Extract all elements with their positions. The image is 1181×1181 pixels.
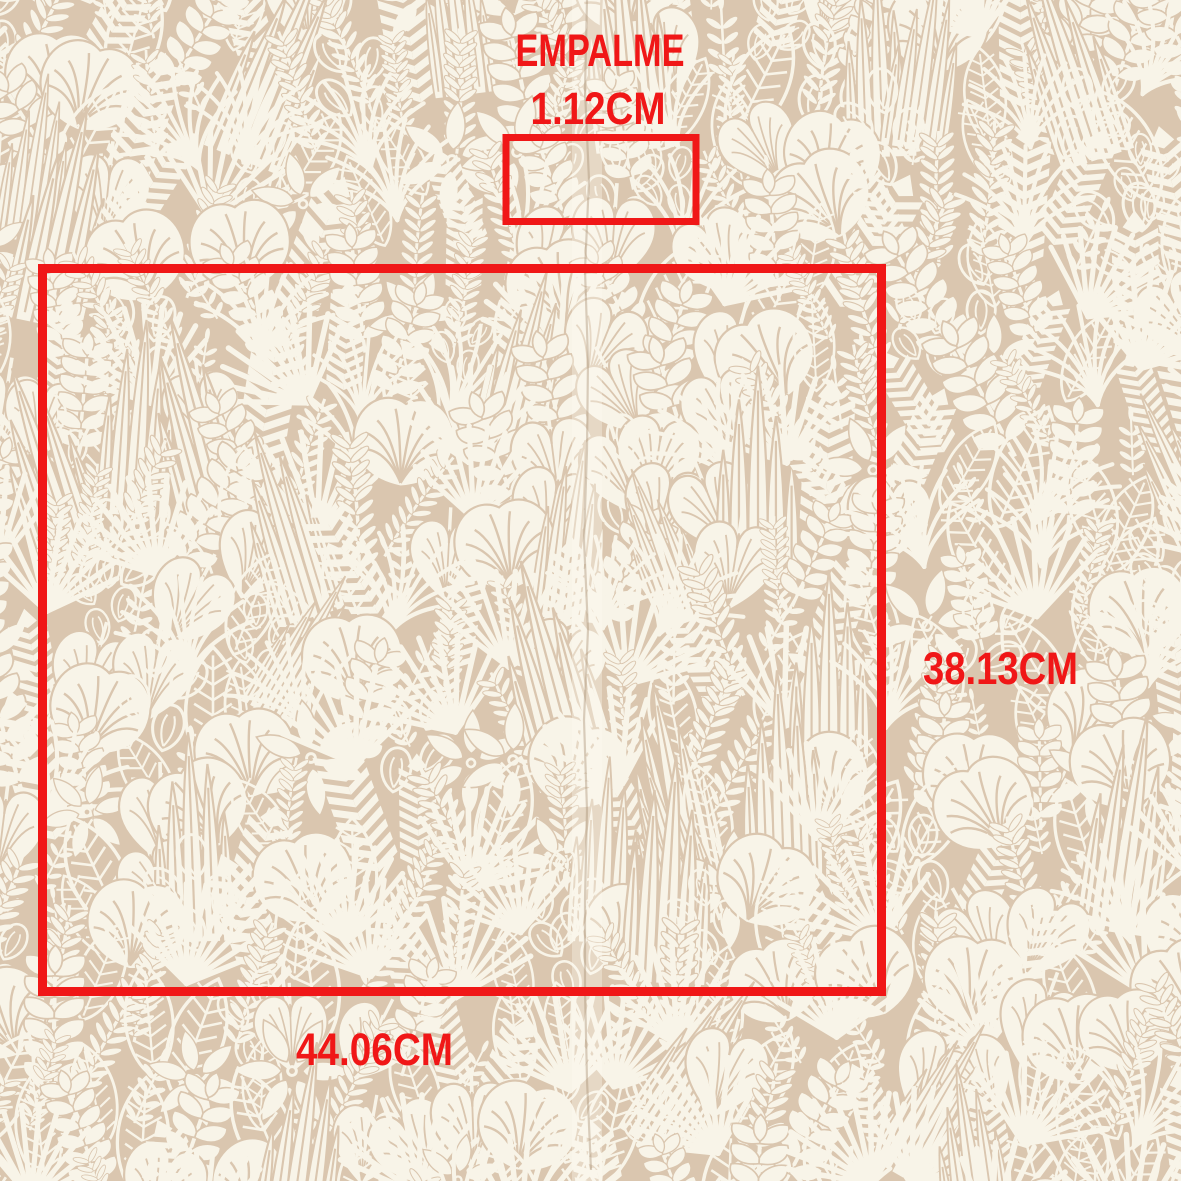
svg-text:44.06CM: 44.06CM	[296, 1024, 453, 1075]
svg-text:38.13CM: 38.13CM	[923, 643, 1078, 694]
svg-text:EMPALME: EMPALME	[516, 25, 685, 76]
svg-text:1.12CM: 1.12CM	[531, 83, 666, 134]
